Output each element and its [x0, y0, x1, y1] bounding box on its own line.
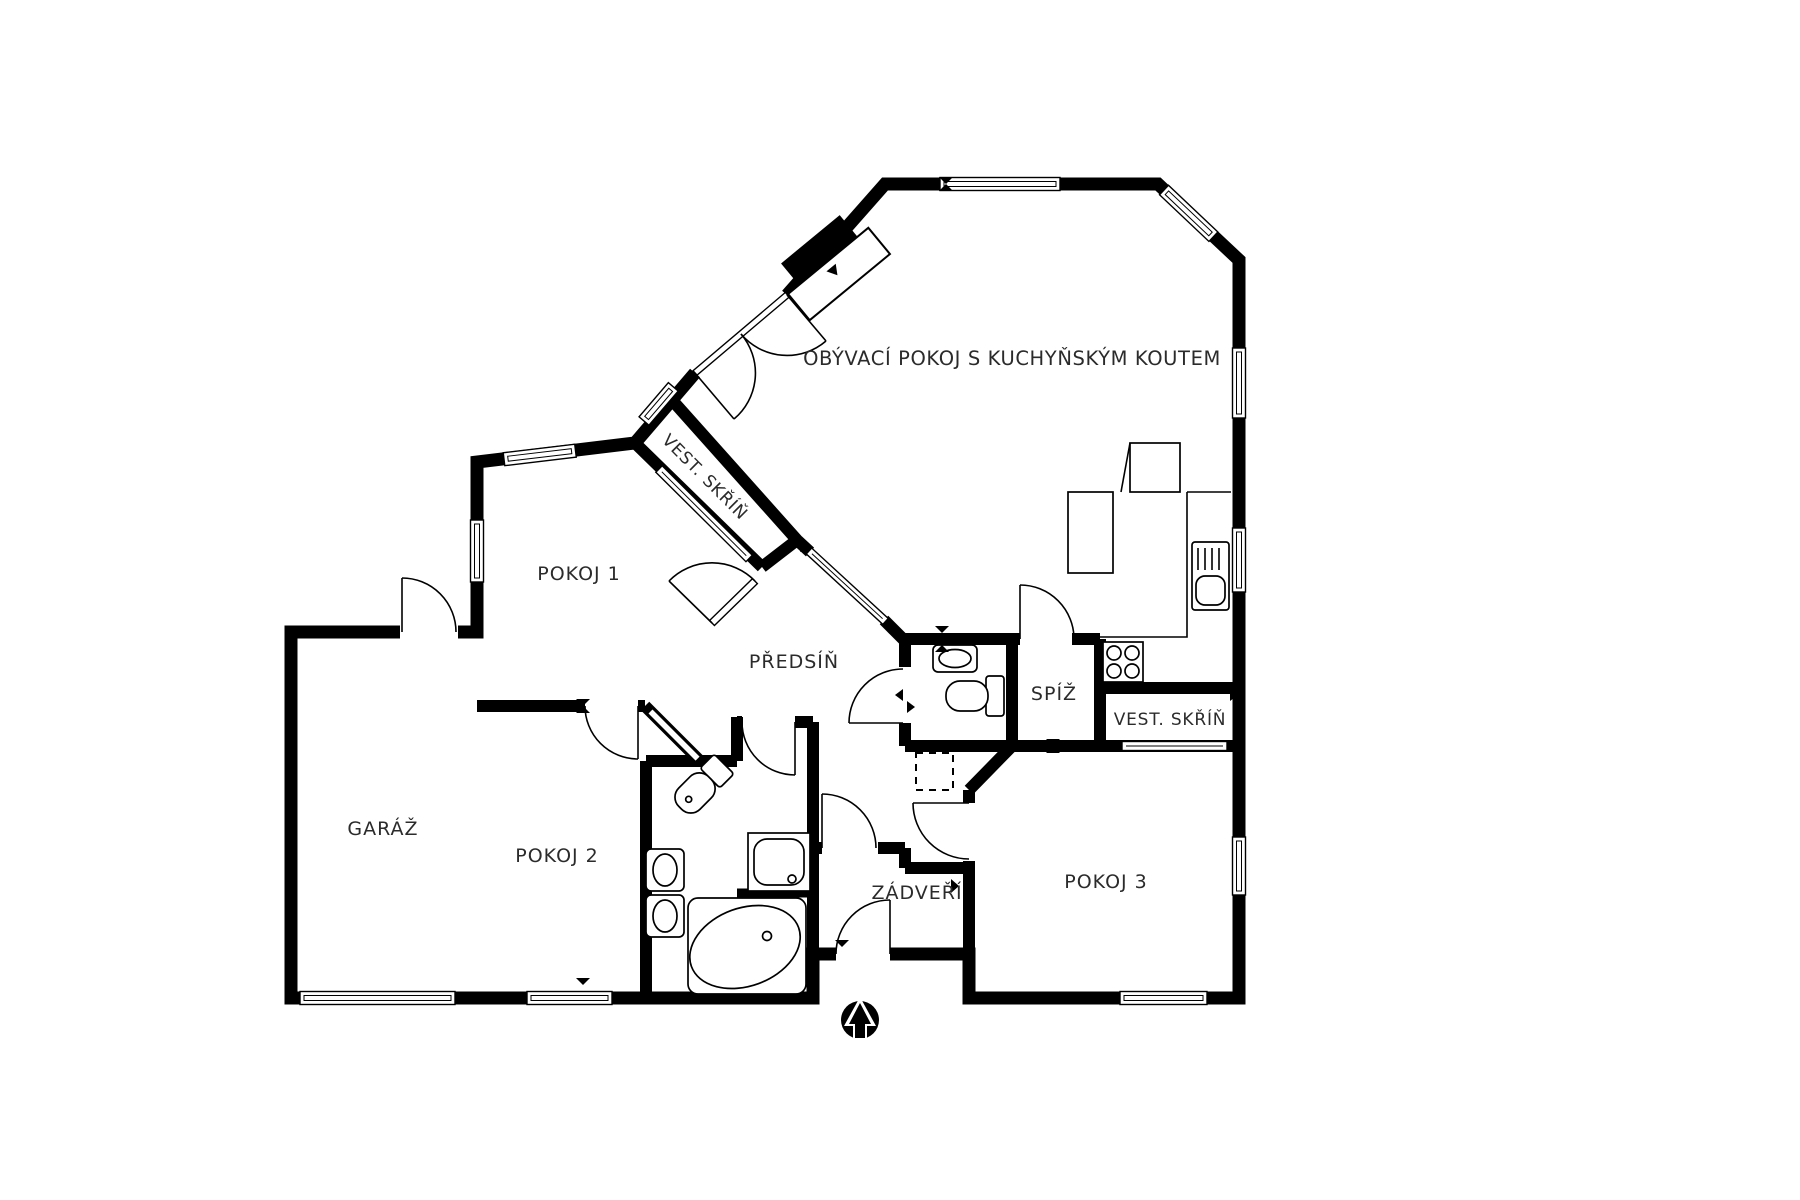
- bathroom-sink-2: [646, 895, 684, 937]
- window-room3-right: [1233, 837, 1246, 895]
- fridge: [1121, 443, 1180, 492]
- window-living-top: [940, 178, 1060, 191]
- window-room2-bottom: [527, 992, 612, 1005]
- window-kitchen-right-1: [1233, 348, 1246, 418]
- room-label-pantry: SPÍŽ: [1031, 682, 1077, 705]
- room-label-room-2: POKOJ 2: [515, 845, 599, 867]
- room-label-room-1: POKOJ 1: [537, 563, 621, 585]
- kitchen-island: [1068, 492, 1113, 573]
- room-label-living-room: OBÝVACÍ POKOJ S KUCHYŇSKÝM KOUTEM: [803, 347, 1221, 370]
- kitchen-sink: [1192, 542, 1229, 610]
- window-room3-bottom: [1120, 992, 1207, 1005]
- shower: [748, 833, 810, 891]
- room-label-vestibule: ZÁDVEŘÍ: [871, 881, 962, 904]
- wc-toilet: [946, 676, 1004, 716]
- wardrobe-front-2: [1122, 742, 1227, 751]
- room-label-hallway: PŘEDSÍŇ: [749, 650, 839, 673]
- window-room1-left: [471, 520, 484, 582]
- floor-plan-page: OBÝVACÍ POKOJ S KUCHYŇSKÝM KOUTEM VEST. …: [0, 0, 1800, 1200]
- garage-door-front: [300, 992, 455, 1005]
- stove: [1103, 642, 1143, 682]
- floor-plan-svg: OBÝVACÍ POKOJ S KUCHYŇSKÝM KOUTEM VEST. …: [0, 0, 1800, 1200]
- bathtub: [678, 891, 812, 1003]
- room-label-garage: GARÁŽ: [347, 817, 418, 840]
- window-kitchen-right-2: [1233, 528, 1246, 592]
- room-label-wardrobe-2: VEST. SKŘÍŇ: [1114, 708, 1227, 730]
- bathroom-sink-1: [646, 849, 684, 891]
- room-label-room-3: POKOJ 3: [1064, 871, 1148, 893]
